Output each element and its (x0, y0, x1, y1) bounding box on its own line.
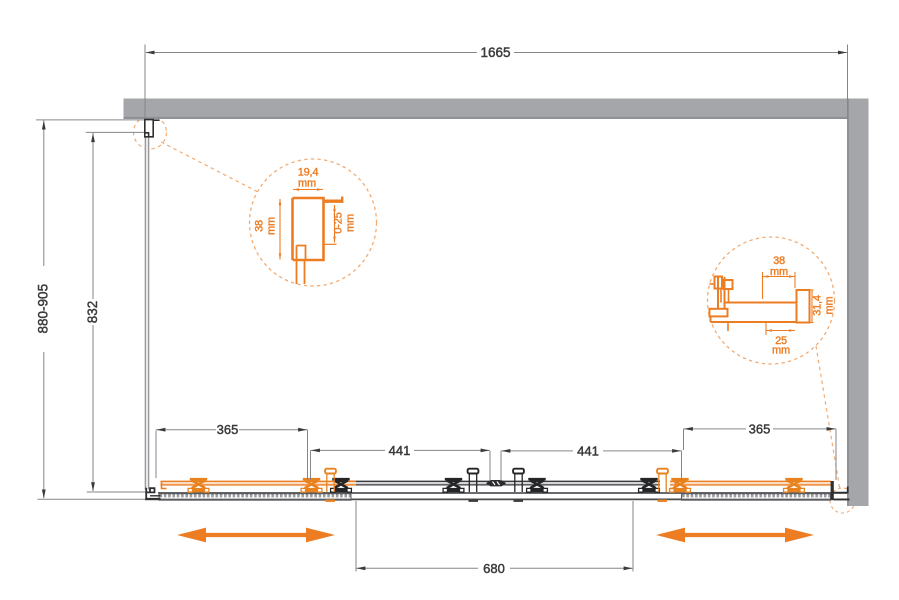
svg-text:mm: mm (266, 217, 278, 235)
svg-text:832: 832 (85, 301, 100, 324)
svg-text:441: 441 (577, 443, 599, 458)
svg-text:880-905: 880-905 (36, 284, 51, 334)
svg-text:0-25: 0-25 (333, 212, 345, 233)
svg-text:1665: 1665 (480, 45, 510, 60)
svg-text:680: 680 (483, 561, 505, 576)
svg-text:365: 365 (217, 422, 239, 437)
svg-text:mm: mm (770, 266, 788, 278)
svg-text:441: 441 (389, 443, 411, 458)
svg-text:mm: mm (824, 297, 836, 315)
svg-text:365: 365 (749, 421, 771, 436)
svg-text:mm: mm (345, 214, 357, 232)
svg-text:mm: mm (298, 178, 316, 190)
svg-text:mm: mm (772, 345, 790, 357)
svg-text:31,4: 31,4 (812, 295, 824, 316)
svg-text:38: 38 (254, 220, 266, 232)
